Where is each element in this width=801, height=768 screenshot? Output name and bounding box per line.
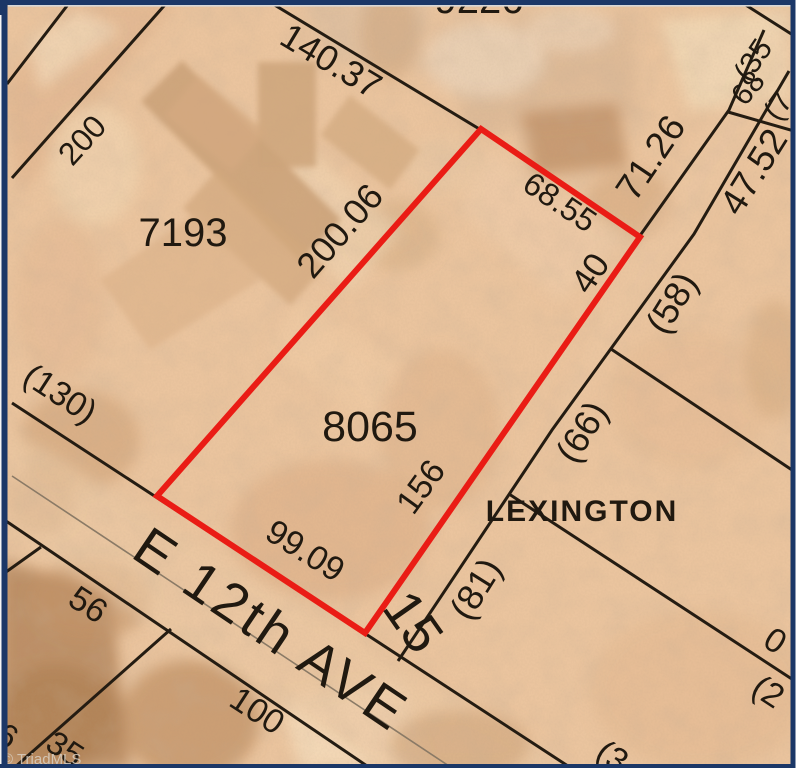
svg-text:8065: 8065	[322, 403, 418, 451]
svg-text:LEXINGTON: LEXINGTON	[486, 495, 678, 528]
svg-text:7193: 7193	[139, 211, 228, 255]
